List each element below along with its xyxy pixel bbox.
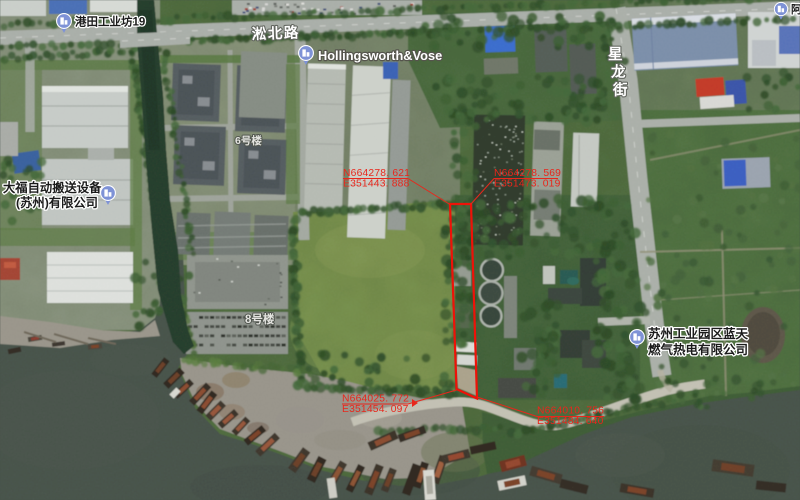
svg-text:大福自动搬送设备: 大福自动搬送设备 (3, 180, 102, 195)
svg-text:8号楼: 8号楼 (245, 312, 275, 326)
svg-text:E351443. 888: E351443. 888 (343, 179, 410, 190)
svg-text:(苏州)有限公司: (苏州)有限公司 (16, 195, 98, 210)
svg-text:阿: 阿 (791, 2, 800, 16)
svg-text:N664025. 772: N664025. 772 (342, 394, 409, 405)
svg-text:Hollingsworth&Vose: Hollingsworth&Vose (318, 48, 442, 63)
svg-text:E351484. 640: E351484. 640 (537, 416, 604, 427)
svg-text:N664010. 756: N664010. 756 (537, 406, 604, 417)
svg-text:N664278. 621: N664278. 621 (343, 168, 410, 179)
svg-text:E351454. 097: E351454. 097 (342, 404, 409, 415)
svg-text:燃气热电有限公司: 燃气热电有限公司 (648, 342, 748, 357)
svg-text:6号楼: 6号楼 (235, 134, 262, 147)
svg-text:淞北路: 淞北路 (252, 23, 301, 43)
svg-text:苏州工业园区蓝天: 苏州工业园区蓝天 (648, 326, 749, 341)
svg-text:星: 星 (608, 46, 623, 63)
svg-text:街: 街 (612, 81, 628, 99)
svg-text:E351473. 019: E351473. 019 (494, 179, 561, 190)
svg-text:N664278. 569: N664278. 569 (494, 168, 561, 179)
svg-text:龙: 龙 (610, 63, 626, 81)
svg-text:港田工业坊19: 港田工业坊19 (75, 15, 145, 29)
